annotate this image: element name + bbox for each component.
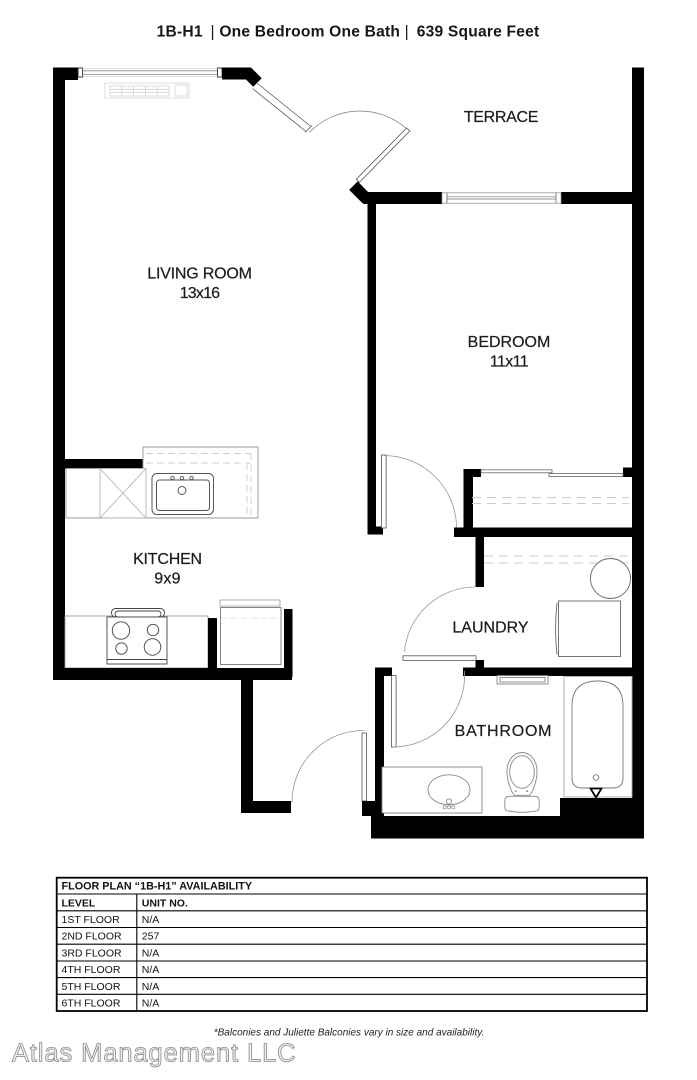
svg-text:*Balconies and Juliette Balcon: *Balconies and Juliette Balconies vary i… — [214, 1028, 485, 1039]
svg-text:BEDROOM: BEDROOM — [468, 334, 551, 351]
svg-text:LAUNDRY: LAUNDRY — [452, 620, 529, 637]
svg-text:N/A: N/A — [142, 964, 160, 976]
svg-text:5TH FLOOR: 5TH FLOOR — [62, 981, 121, 993]
svg-text:9x9: 9x9 — [154, 571, 180, 588]
svg-text:257: 257 — [142, 931, 160, 943]
svg-text:1ST FLOOR: 1ST FLOOR — [62, 914, 121, 926]
svg-text:UNIT NO.: UNIT NO. — [142, 897, 188, 909]
svg-text:N/A: N/A — [142, 981, 160, 993]
svg-text:FLOOR PLAN “1B-H1” AVAILABILIT: FLOOR PLAN “1B-H1” AVAILABILITY — [62, 881, 253, 893]
svg-text:6TH FLOOR: 6TH FLOOR — [62, 998, 121, 1010]
svg-text:N/A: N/A — [142, 948, 160, 960]
svg-text:N/A: N/A — [142, 998, 160, 1010]
svg-text:LIVING ROOM: LIVING ROOM — [147, 266, 251, 283]
svg-text:LEVEL: LEVEL — [62, 897, 96, 909]
svg-text:13x16: 13x16 — [180, 285, 220, 302]
svg-text:11x11: 11x11 — [490, 354, 529, 371]
svg-text:KITCHEN: KITCHEN — [133, 551, 202, 568]
svg-text:N/A: N/A — [142, 914, 160, 926]
svg-text:Atlas Management LLC: Atlas Management LLC — [12, 1040, 296, 1068]
svg-text:TERRACE: TERRACE — [464, 109, 538, 126]
svg-text:2ND FLOOR: 2ND FLOOR — [62, 931, 123, 943]
svg-text:3RD FLOOR: 3RD FLOOR — [62, 948, 123, 960]
svg-text:BATHROOM: BATHROOM — [455, 723, 553, 740]
svg-text:1B-H1 | One Bedroom One Bath: 1B-H1 | One Bedroom One Bath | 639 Squar… — [157, 24, 540, 41]
svg-text:4TH FLOOR: 4TH FLOOR — [62, 964, 121, 976]
